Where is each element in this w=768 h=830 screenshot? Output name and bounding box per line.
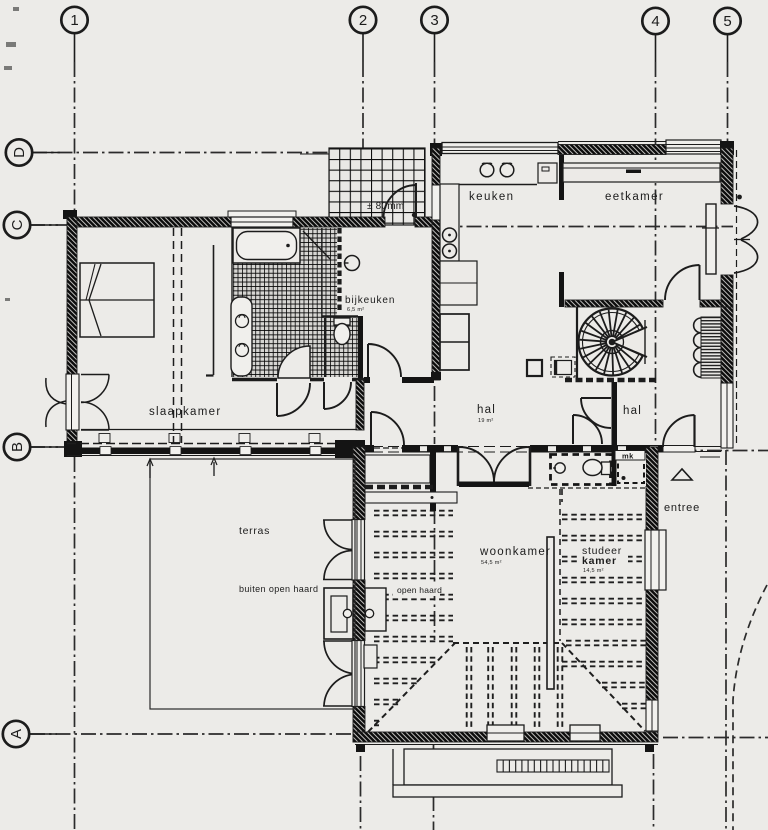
svg-text:keuken: keuken [469, 191, 514, 203]
svg-text:eetkamer: eetkamer [605, 191, 664, 203]
svg-text:hal: hal [477, 404, 496, 416]
svg-text:slaapkamer: slaapkamer [149, 406, 221, 418]
svg-text:± 80mm: ± 80mm [367, 201, 404, 212]
svg-text:19 m²: 19 m² [478, 418, 494, 424]
svg-text:open haard: open haard [397, 585, 442, 595]
svg-text:6,5 m²: 6,5 m² [347, 307, 364, 313]
svg-text:A: A [8, 729, 25, 739]
svg-text:terras: terras [239, 525, 270, 537]
svg-text:D: D [11, 147, 28, 158]
svg-text:entree: entree [664, 502, 700, 514]
svg-text:mk: mk [622, 452, 634, 461]
svg-text:C: C [9, 219, 26, 230]
svg-text:kamer: kamer [582, 555, 617, 567]
svg-text:14,5 m²: 14,5 m² [583, 568, 604, 574]
svg-text:54,5 m²: 54,5 m² [481, 560, 502, 566]
svg-text:1: 1 [70, 12, 78, 29]
svg-text:3: 3 [430, 12, 438, 29]
svg-text:2: 2 [359, 12, 367, 29]
svg-text:bijkeuken: bijkeuken [345, 295, 395, 306]
svg-text:buiten open haard: buiten open haard [239, 584, 318, 594]
svg-text:B: B [9, 442, 26, 452]
svg-text:hal: hal [623, 405, 642, 417]
svg-text:4: 4 [651, 13, 659, 30]
svg-text:woonkamer: woonkamer [479, 546, 551, 558]
svg-text:5: 5 [723, 13, 731, 30]
